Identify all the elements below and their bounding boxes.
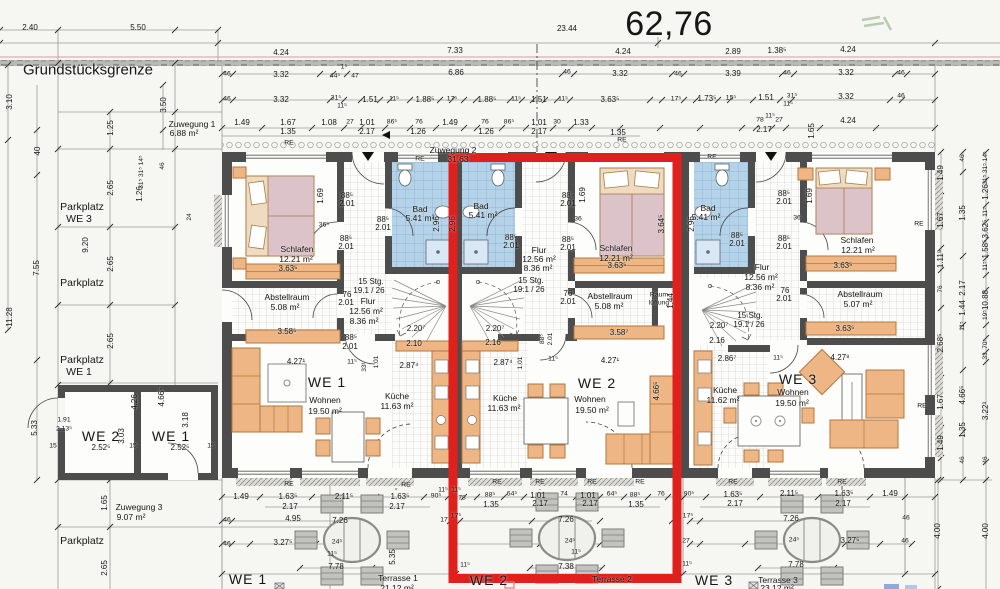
coffee-table-icon-we1 [268, 364, 306, 402]
floor-plan-drawing [0, 0, 1000, 589]
blue-mark [884, 584, 899, 589]
terraces [295, 493, 869, 585]
side-table-icon-we2 [618, 402, 634, 426]
toilet-icon-we1 [398, 164, 412, 186]
toilet-icon-we3 [715, 164, 729, 186]
toilet-icon-we2 [491, 164, 505, 186]
legend-square-icon [275, 582, 758, 589]
green-stamp [862, 17, 891, 30]
terrace-furniture-icon-1 [295, 495, 409, 585]
bed-icon-we2 [600, 168, 664, 256]
blue-mark [905, 585, 917, 589]
shower-icon-we3 [696, 240, 720, 264]
gravel-strip [222, 141, 935, 152]
kitchen-counter-icon-we3 [694, 351, 712, 465]
terrace-furniture-icon-3 [755, 495, 869, 585]
sink-icon-we2 [463, 206, 479, 218]
shower-icon-we2 [464, 240, 488, 264]
sideboard-icon-we2 [574, 326, 664, 339]
floor-plan-canvas: 2.405.5023.4462,76Grundstücksgrenze4.247… [0, 0, 1000, 589]
building [214, 131, 943, 486]
terrace-furniture-icon-2 [510, 493, 624, 583]
bed-icon-we1 [246, 176, 314, 256]
storage-building [28, 385, 218, 480]
shower-icon-we1 [426, 240, 450, 264]
sideboard-icon-we1 [246, 330, 340, 343]
property-boundary-line [0, 60, 1000, 66]
sink-icon-we3 [695, 206, 711, 218]
bed-icon-we3 [816, 168, 872, 234]
sideboard-icon-we3 [806, 322, 896, 335]
